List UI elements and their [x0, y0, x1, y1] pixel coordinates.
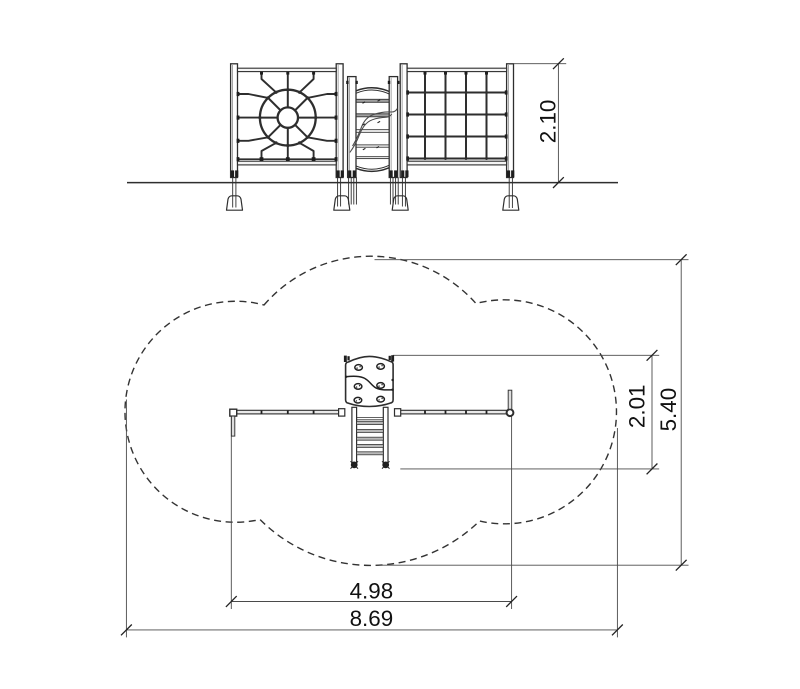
svg-text:5.40: 5.40	[656, 388, 681, 432]
svg-text:2.01: 2.01	[625, 385, 650, 429]
svg-text:2.10: 2.10	[536, 100, 561, 144]
svg-text:8.69: 8.69	[350, 606, 394, 631]
svg-text:4.98: 4.98	[350, 578, 394, 603]
